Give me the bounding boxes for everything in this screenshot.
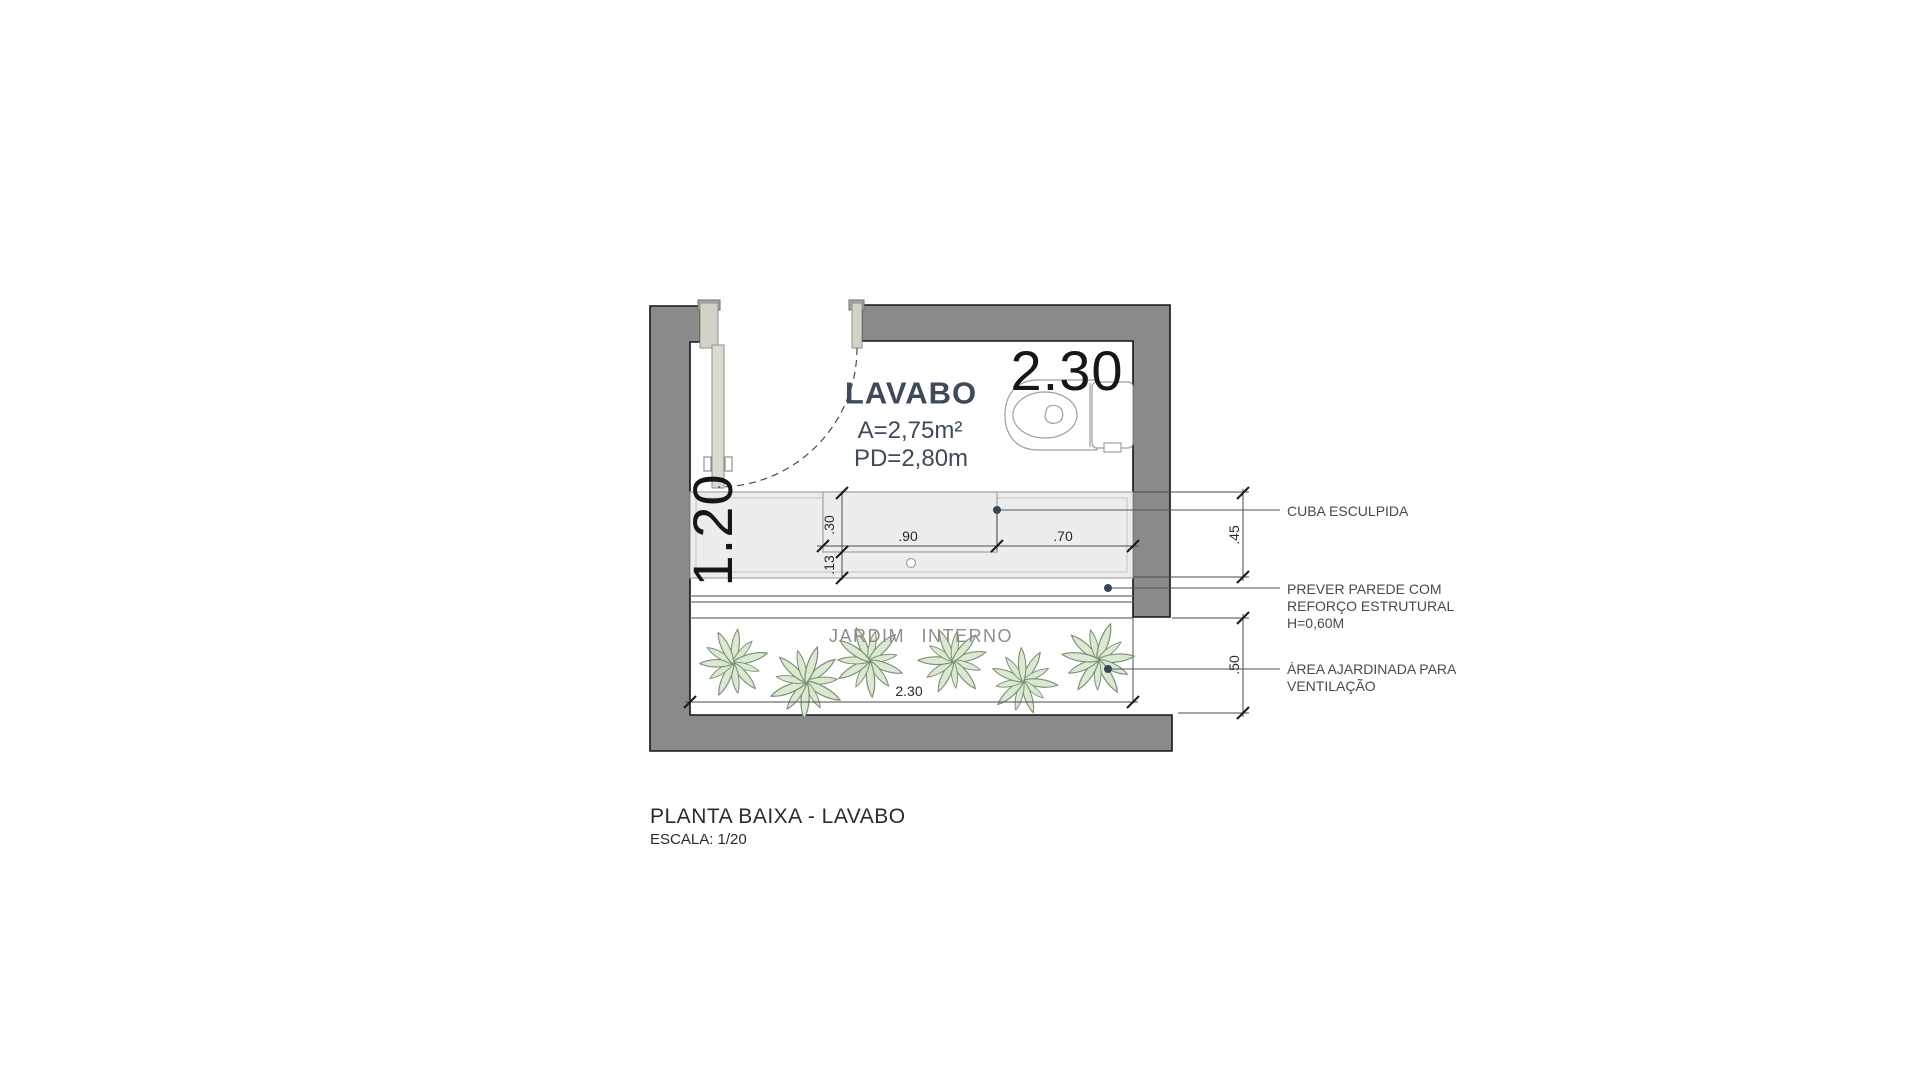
dim-counter-depth: .45	[1227, 525, 1241, 544]
dim-counter-side: .70	[1053, 529, 1072, 543]
garden-label: JARDIM INTERNO	[829, 627, 1013, 645]
annotation-parede-line1: PREVER PAREDE COM	[1287, 581, 1454, 598]
floorplan-linework	[0, 0, 1920, 1080]
leader-dot-jardim	[1104, 665, 1112, 673]
door-handle-right	[725, 457, 732, 471]
annotation-jardim-line2: VENTILAÇÃO	[1287, 678, 1456, 695]
dim-basin-width: .90	[898, 529, 917, 543]
room-area-label: A=2,75m²	[858, 419, 963, 443]
plant-icon	[1047, 608, 1150, 711]
toilet-flush-detail	[1104, 443, 1121, 452]
dim-basin-depth: .30	[822, 515, 836, 534]
room-ceiling-label: PD=2,80m	[854, 447, 968, 471]
dim-overall-width: 2.30	[1011, 343, 1124, 399]
dim-overall-depth: 1.20	[685, 474, 741, 587]
door-jamb-left	[700, 303, 718, 348]
drawing-scale: ESCALA: 1/20	[650, 831, 747, 848]
annotation-jardim-line1: ÁREA AJARDINADA PARA	[1287, 661, 1456, 678]
annotation-parede-line2: REFORÇO ESTRUTURAL	[1287, 598, 1454, 615]
dim-front-strip: .13	[822, 555, 836, 574]
drawing-title: PLANTA BAIXA - LAVABO	[650, 805, 906, 829]
door-leaf	[712, 345, 724, 488]
door-swing-arc	[718, 348, 857, 487]
annotation-cuba: CUBA ESCULPIDA	[1287, 503, 1408, 520]
drain-circle	[907, 559, 916, 568]
annotation-jardim: ÁREA AJARDINADA PARA VENTILAÇÃO	[1287, 661, 1456, 695]
annotation-parede: PREVER PAREDE COM REFORÇO ESTRUTURAL H=0…	[1287, 581, 1454, 632]
door	[698, 300, 864, 488]
door-handle-left	[704, 457, 711, 471]
door-jamb-right	[852, 303, 862, 348]
room-name-label: LAVABO	[845, 378, 977, 409]
plant-icon	[977, 636, 1069, 728]
low-wall-lines	[690, 596, 1133, 602]
leader-dot-cuba	[993, 506, 1001, 514]
dim-garden-width: 2.30	[895, 684, 922, 698]
toilet-drain	[1045, 405, 1063, 423]
annotation-parede-line3: H=0,60M	[1287, 615, 1454, 632]
annotation-cuba-line1: CUBA ESCULPIDA	[1287, 503, 1408, 520]
dim-garden-depth: .50	[1227, 655, 1241, 674]
plant-icon	[695, 625, 772, 702]
floorplan-canvas: 2.30 1.20 LAVABO A=2,75m² PD=2,80m .90 .…	[0, 0, 1920, 1080]
leader-dot-parede	[1104, 584, 1112, 592]
